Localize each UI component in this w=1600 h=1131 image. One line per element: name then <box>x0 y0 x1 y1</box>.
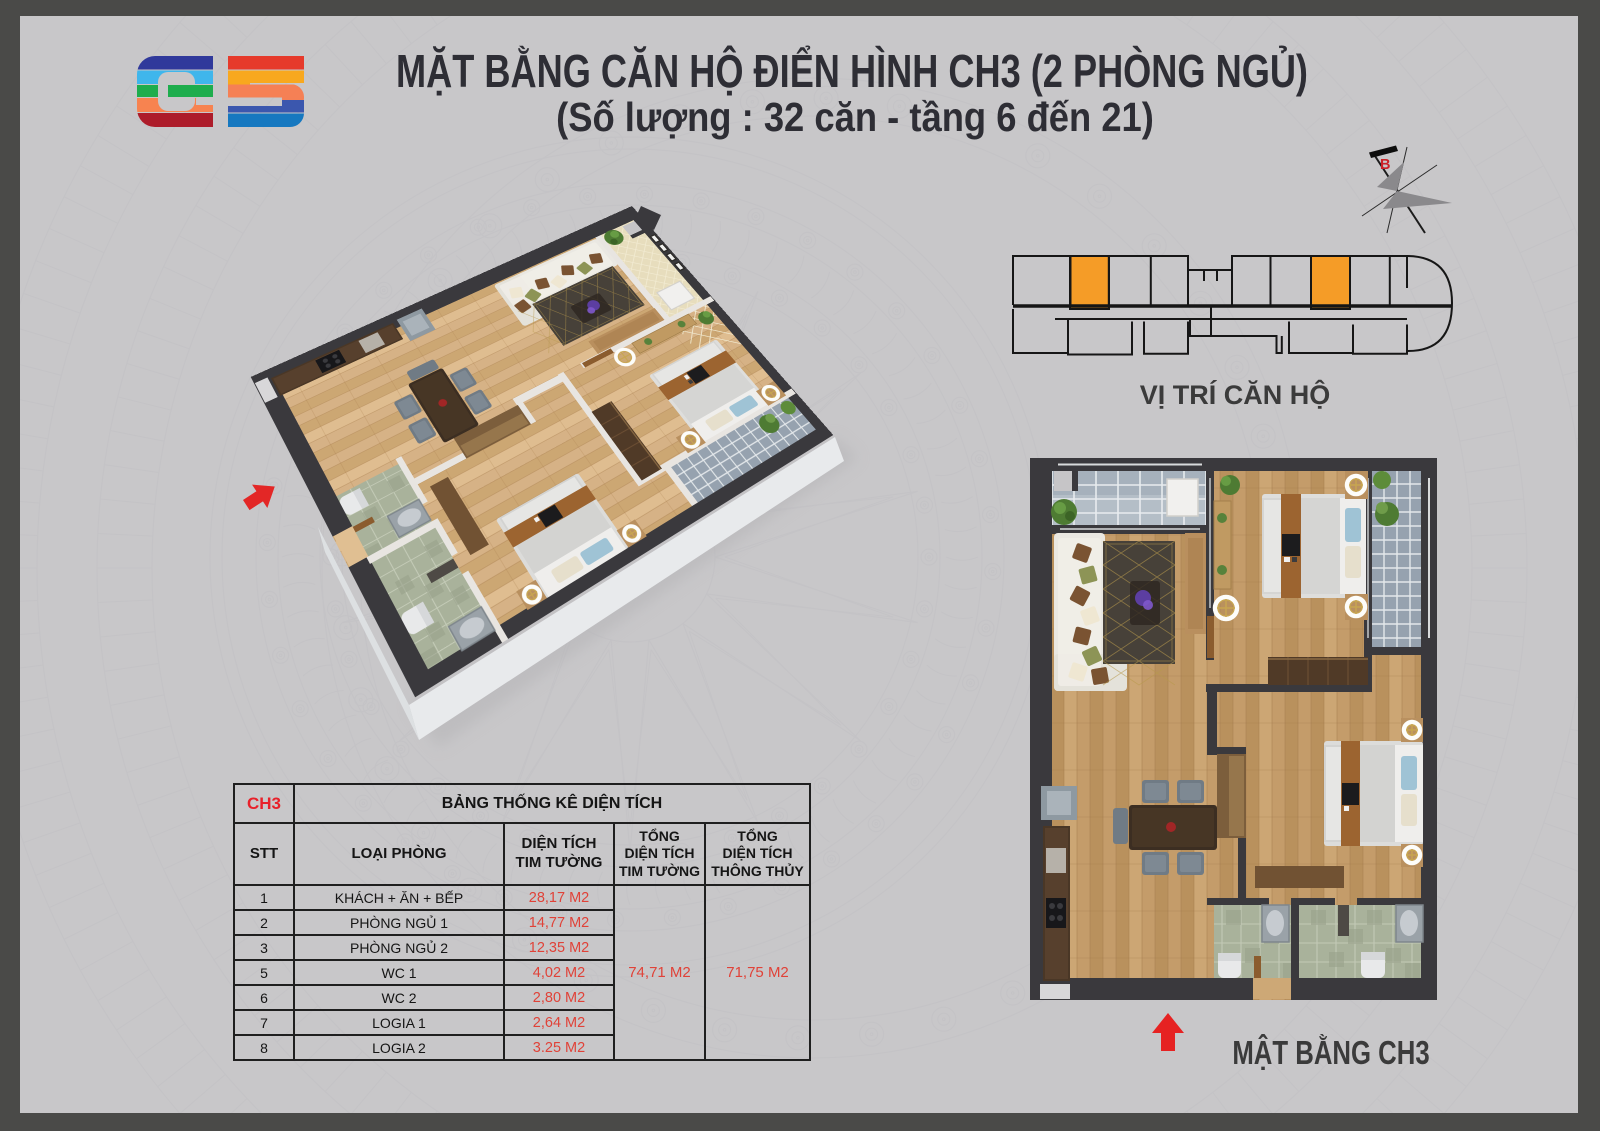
svg-text:B: B <box>1380 157 1390 173</box>
